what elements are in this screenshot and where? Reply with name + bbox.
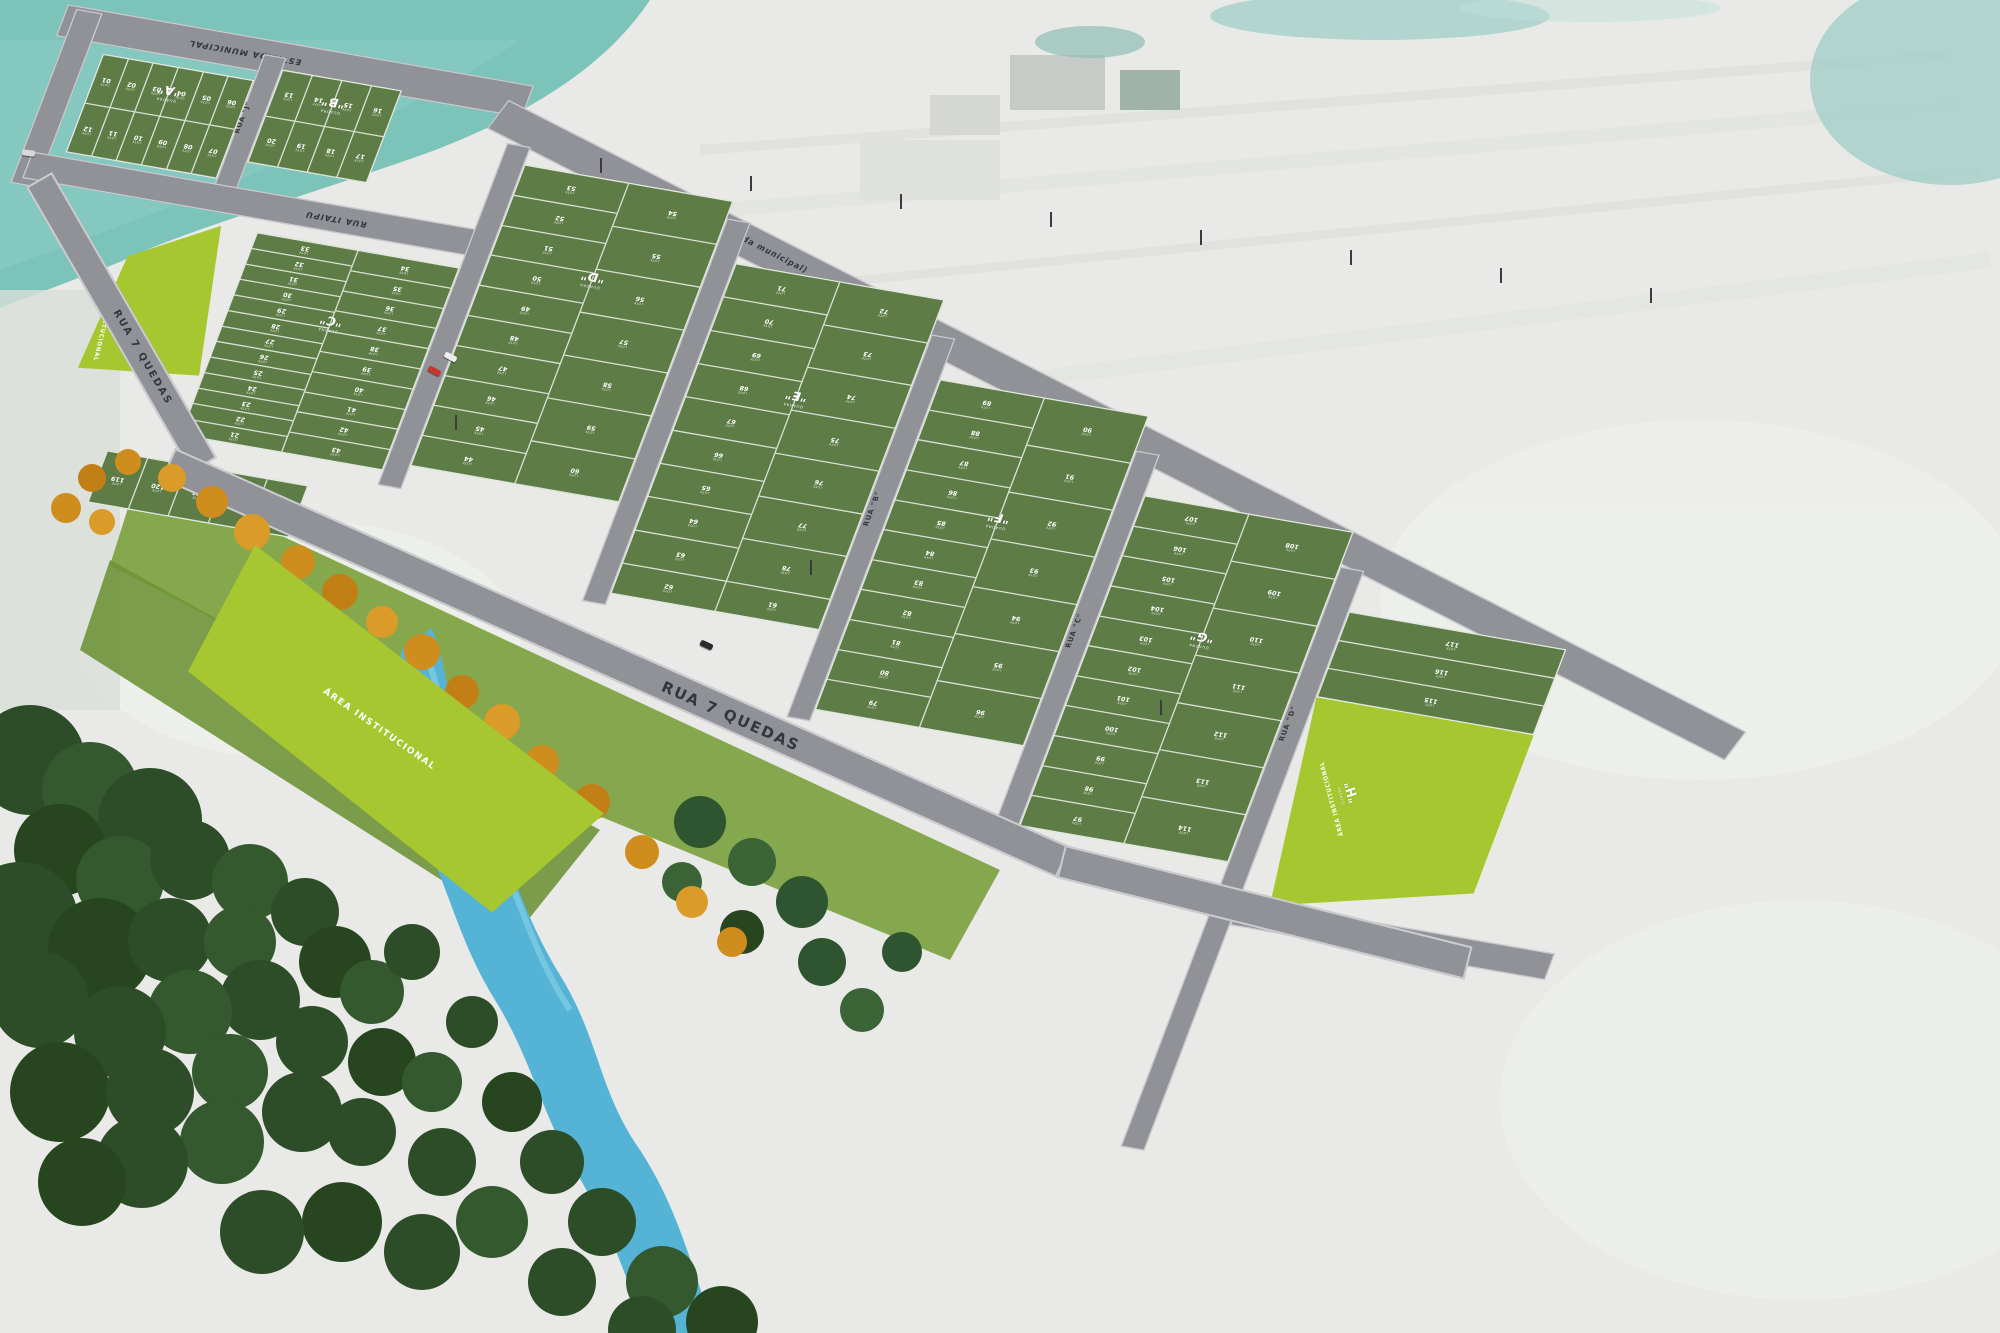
lote-word: LOTE: [1230, 688, 1244, 693]
lote-word: LOTE: [265, 142, 275, 147]
lot-label: LOTE42: [337, 426, 350, 436]
lot-label: LOTE07: [207, 146, 220, 156]
lote-word: LOTE: [992, 667, 1002, 672]
lote-word: LOTE: [912, 584, 922, 589]
lot-label: LOTE09: [157, 138, 170, 148]
lot-label: LOTE25: [251, 368, 264, 378]
lote-word: LOTE: [383, 310, 393, 315]
lote-word: LOTE: [1094, 760, 1104, 765]
lote-word: LOTE: [508, 340, 518, 345]
lote-word: LOTE: [737, 390, 747, 395]
lote-word: LOTE: [935, 524, 945, 529]
lote-word: LOTE: [368, 351, 378, 356]
lote-word: LOTE: [796, 527, 806, 532]
lot-label: LOTE94: [1010, 614, 1023, 624]
light-pole: [810, 560, 812, 575]
lot-label: LOTE116: [1433, 668, 1449, 679]
lot-label: LOTE41: [345, 405, 358, 415]
lot-label: LOTE20: [265, 136, 278, 146]
lot-label: LOTE19: [295, 142, 308, 152]
lot-label: LOTE98: [1083, 784, 1096, 794]
lot-label: LOTE54: [666, 209, 679, 219]
lote-word: LOTE: [634, 300, 644, 305]
lot-label: LOTE114: [1177, 824, 1193, 835]
lote-word: LOTE: [240, 405, 250, 410]
lot-label: LOTE32: [293, 260, 306, 270]
lot-label: LOTE87: [958, 459, 971, 469]
lot-label: LOTE78: [780, 564, 793, 574]
lot-label: LOTE79: [867, 698, 880, 708]
lot-label: LOTE88: [969, 429, 982, 439]
lote-word: LOTE: [485, 400, 495, 405]
institutional-label: ÁREA INSTITUCIONAL: [321, 687, 438, 773]
lot-label: LOTE117: [1444, 640, 1460, 651]
lot-label: LOTE83: [912, 578, 925, 588]
lot-label: LOTE71: [775, 284, 788, 294]
lote-word: LOTE: [337, 431, 347, 436]
light-pole: [750, 176, 752, 191]
lote-word: LOTE: [245, 390, 255, 395]
lote-word: LOTE: [324, 153, 334, 158]
lot-label: LOTE37: [375, 325, 388, 335]
light-pole: [1160, 700, 1162, 715]
lot-label: LOTE84: [924, 549, 937, 559]
lot-label: LOTE06: [225, 98, 238, 108]
lot-label: LOTE65: [700, 484, 713, 494]
lote-word: LOTE: [565, 190, 575, 195]
lot-label: LOTE02: [125, 80, 138, 90]
lote-word: LOTE: [725, 423, 735, 428]
lot-label: LOTE51: [542, 244, 555, 254]
lot-label: LOTE113: [1194, 777, 1210, 788]
lote-word: LOTE: [200, 99, 210, 104]
lote-word: LOTE: [901, 614, 911, 619]
lote-word: LOTE: [281, 297, 291, 302]
lot-label: LOTE97: [1071, 814, 1084, 824]
lote-word: LOTE: [585, 429, 595, 434]
lot-label: LOTE21: [228, 430, 241, 440]
lot-label: LOTE108: [1284, 541, 1300, 552]
lot-label: LOTE75: [829, 436, 842, 446]
lote-word: LOTE: [263, 343, 273, 348]
institutional-label: ÁREA INSTITUCIONAL: [1319, 760, 1345, 837]
lot-label: LOTE57: [617, 337, 630, 347]
lot-label: LOTE05: [200, 93, 213, 103]
lot-label: LOTE49: [519, 304, 532, 314]
lot-label: LOTE64: [687, 517, 700, 527]
lot-label: LOTE52: [553, 214, 566, 224]
lot-label: LOTE90: [1081, 425, 1094, 435]
lot-label: LOTE40: [352, 385, 365, 395]
lote-word: LOTE: [287, 281, 297, 286]
lote-word: LOTE: [1433, 674, 1447, 679]
lot-label: LOTE62: [662, 582, 675, 592]
lot-label: LOTE81: [890, 638, 903, 648]
lot-label: LOTE74: [845, 393, 858, 403]
lote-word: LOTE: [354, 158, 364, 163]
lot-label: LOTE69: [750, 351, 763, 361]
lote-word: LOTE: [391, 290, 401, 295]
lote-word: LOTE: [1045, 525, 1055, 530]
lote-word: LOTE: [150, 90, 160, 95]
lot-label: LOTE66: [712, 451, 725, 461]
lot-label: LOTE60: [569, 466, 582, 476]
lote-word: LOTE: [878, 674, 888, 679]
lot-label: LOTE39: [360, 365, 373, 375]
lote-word: LOTE: [100, 82, 110, 87]
lote-word: LOTE: [329, 452, 339, 457]
lote-word: LOTE: [813, 484, 823, 489]
lot-label: LOTE77: [796, 521, 809, 531]
lote-word: LOTE: [293, 266, 303, 271]
lote-word: LOTE: [352, 391, 362, 396]
lot-label: LOTE01: [100, 76, 113, 86]
lote-word: LOTE: [474, 430, 484, 435]
lote-word: LOTE: [980, 405, 990, 410]
lote-word: LOTE: [360, 371, 370, 376]
lot-label: LOTE15: [342, 101, 355, 111]
lot-label: LOTE56: [634, 294, 647, 304]
light-pole: [1500, 268, 1502, 283]
lote-word: LOTE: [207, 152, 217, 157]
lot-label: LOTE95: [992, 661, 1005, 671]
lot-label: LOTE38: [368, 345, 381, 355]
lote-word: LOTE: [974, 714, 984, 719]
lote-word: LOTE: [251, 374, 261, 379]
lot-label: LOTE13: [282, 91, 295, 101]
lot-label: LOTE31: [287, 275, 300, 285]
lote-word: LOTE: [601, 386, 611, 391]
lot-label: LOTE100: [1103, 724, 1119, 735]
light-pole: [600, 158, 602, 173]
lot-label: LOTE34: [398, 264, 411, 274]
lot-label: LOTE76: [813, 478, 826, 488]
quadra-letter: "H": [1341, 779, 1362, 805]
lote-word: LOTE: [650, 257, 660, 262]
lot-label: LOTE80: [878, 668, 891, 678]
lot-label: LOTE73: [861, 350, 874, 360]
lot-label: LOTE109: [1266, 588, 1282, 599]
lot-label: LOTE105: [1160, 574, 1176, 585]
lote-word: LOTE: [780, 570, 790, 575]
lot-label: LOTE58: [601, 380, 614, 390]
lote-word: LOTE: [542, 250, 552, 255]
lote-word: LOTE: [228, 436, 238, 441]
lot-label: LOTE91: [1063, 473, 1076, 483]
lote-word: LOTE: [617, 343, 627, 348]
lote-word: LOTE: [666, 214, 676, 219]
lot-label: LOTE106: [1172, 544, 1188, 555]
lote-word: LOTE: [132, 139, 142, 144]
lote-word: LOTE: [845, 399, 855, 404]
lot-label: LOTE22: [234, 415, 247, 425]
lot-label: LOTE103: [1138, 634, 1154, 645]
light-pole: [455, 415, 457, 430]
lot-label: LOTE119: [110, 474, 126, 485]
lot-label: LOTE102: [1126, 664, 1142, 675]
light-pole: [1050, 212, 1052, 227]
lot-label: LOTE96: [974, 708, 987, 718]
lot-label: LOTE101: [1115, 694, 1131, 705]
lote-word: LOTE: [175, 95, 185, 100]
lote-word: LOTE: [312, 102, 322, 107]
lote-word: LOTE: [861, 356, 871, 361]
lot-label: LOTE107: [1183, 515, 1199, 526]
lote-word: LOTE: [398, 270, 408, 275]
light-pole: [1200, 230, 1202, 245]
lot-label: LOTE45: [474, 424, 487, 434]
lot-label: LOTE18: [324, 147, 337, 157]
lote-word: LOTE: [1063, 478, 1073, 483]
lote-word: LOTE: [766, 606, 776, 611]
lote-word: LOTE: [829, 441, 839, 446]
lot-label: LOTE85: [935, 519, 948, 529]
lot-label: LOTE30: [281, 291, 294, 301]
lot-label: LOTE03: [150, 84, 163, 94]
lote-word: LOTE: [157, 143, 167, 148]
lot-label: LOTE17: [354, 152, 367, 162]
lote-word: LOTE: [371, 112, 381, 117]
lote-word: LOTE: [125, 86, 135, 91]
lot-label: LOTE08: [182, 142, 195, 152]
lote-word: LOTE: [1071, 820, 1081, 825]
lote-word: LOTE: [969, 435, 979, 440]
lote-word: LOTE: [462, 460, 472, 465]
lot-label: LOTE89: [980, 399, 993, 409]
lot-label: LOTE43: [329, 446, 342, 456]
lot-label: LOTE67: [725, 417, 738, 427]
lote-word: LOTE: [496, 370, 506, 375]
lot-label: LOTE72: [877, 307, 890, 317]
lot-label: LOTE99: [1094, 754, 1107, 764]
lote-word: LOTE: [674, 556, 684, 561]
lote-word: LOTE: [1183, 520, 1197, 525]
lote-word: LOTE: [890, 644, 900, 649]
lote-word: LOTE: [750, 357, 760, 362]
lote-word: LOTE: [924, 554, 934, 559]
lot-label: LOTE86: [946, 489, 959, 499]
lot-label: LOTE29: [275, 306, 288, 316]
lote-word: LOTE: [275, 312, 285, 317]
lote-word: LOTE: [282, 96, 292, 101]
lote-word: LOTE: [234, 421, 244, 426]
lote-word: LOTE: [877, 313, 887, 318]
lote-word: LOTE: [375, 330, 385, 335]
lot-label: LOTE104: [1149, 604, 1165, 615]
lot-label: LOTE27: [263, 337, 276, 347]
lote-word: LOTE: [712, 456, 722, 461]
lote-word: LOTE: [775, 290, 785, 295]
lot-label: LOTE04: [175, 89, 188, 99]
quadra-word: QUADRA: [1337, 786, 1346, 805]
lot-label: LOTE14: [312, 96, 325, 106]
lote-word: LOTE: [298, 250, 308, 255]
lot-label: LOTE63: [674, 550, 687, 560]
lot-label: LOTE35: [391, 284, 404, 294]
lot-label: LOTE50: [531, 274, 544, 284]
lote-word: LOTE: [519, 310, 529, 315]
lote-word: LOTE: [946, 494, 956, 499]
lote-word: LOTE: [531, 280, 541, 285]
lot-label: LOTE111: [1230, 682, 1246, 693]
lot-label: LOTE28: [269, 322, 282, 332]
lot-label: LOTE47: [496, 364, 509, 374]
lote-word: LOTE: [345, 411, 355, 416]
lot-label: LOTE92: [1045, 520, 1058, 530]
lot-label: LOTE120: [150, 481, 166, 492]
light-pole: [1650, 288, 1652, 303]
lot-label: LOTE70: [763, 318, 776, 328]
lote-word: LOTE: [107, 135, 117, 140]
lot-label: LOTE93: [1028, 567, 1041, 577]
lote-word: LOTE: [553, 220, 563, 225]
lote-word: LOTE: [1010, 620, 1020, 625]
lot-label: LOTE11: [107, 129, 120, 139]
lote-word: LOTE: [1028, 572, 1038, 577]
lot-label: LOTE82: [901, 608, 914, 618]
lot-label: LOTE68: [737, 384, 750, 394]
lote-word: LOTE: [687, 523, 697, 528]
lote-word: LOTE: [269, 328, 279, 333]
lote-word: LOTE: [295, 147, 305, 152]
lot-label: LOTE16: [371, 106, 384, 116]
light-pole: [1350, 250, 1352, 265]
lote-word: LOTE: [569, 472, 579, 477]
lot-label: LOTE48: [508, 334, 521, 344]
lote-word: LOTE: [257, 359, 267, 364]
lote-word: LOTE: [1083, 790, 1093, 795]
lote-word: LOTE: [700, 490, 710, 495]
lot-label: LOTE33: [298, 244, 311, 254]
lot-label: LOTE110: [1248, 635, 1264, 646]
lot-label: LOTE115: [1422, 696, 1438, 707]
lot-label: LOTE55: [650, 252, 663, 262]
lot-label: LOTE44: [462, 454, 475, 464]
lote-word: LOTE: [958, 464, 968, 469]
lot-label: LOTE12: [82, 124, 95, 134]
lote-word: LOTE: [82, 130, 92, 135]
lote-word: LOTE: [1248, 641, 1262, 646]
lote-word: LOTE: [867, 704, 877, 709]
lote-word: LOTE: [763, 323, 773, 328]
street-label: ESTRADA MUNICIPAL: [187, 38, 303, 66]
lot-label: LOTE24: [245, 384, 258, 394]
lote-word: LOTE: [342, 107, 352, 112]
lot-label: LOTE10: [132, 133, 145, 143]
lote-word: LOTE: [662, 588, 672, 593]
lote-word: LOTE: [225, 103, 235, 108]
lot-label: LOTE53: [565, 184, 578, 194]
lot-label: LOTE61: [766, 600, 779, 610]
lote-word: LOTE: [1081, 431, 1091, 436]
lot-label: LOTE46: [485, 394, 498, 404]
lot-label: LOTE23: [240, 399, 253, 409]
light-pole: [900, 194, 902, 209]
lote-word: LOTE: [182, 148, 192, 153]
street-label: RUA ITAIPU: [304, 209, 369, 228]
lot-label: LOTE112: [1212, 729, 1228, 740]
lot-label: LOTE26: [257, 353, 270, 363]
lot-label: LOTE59: [585, 423, 598, 433]
lot-label: LOTE36: [383, 304, 396, 314]
